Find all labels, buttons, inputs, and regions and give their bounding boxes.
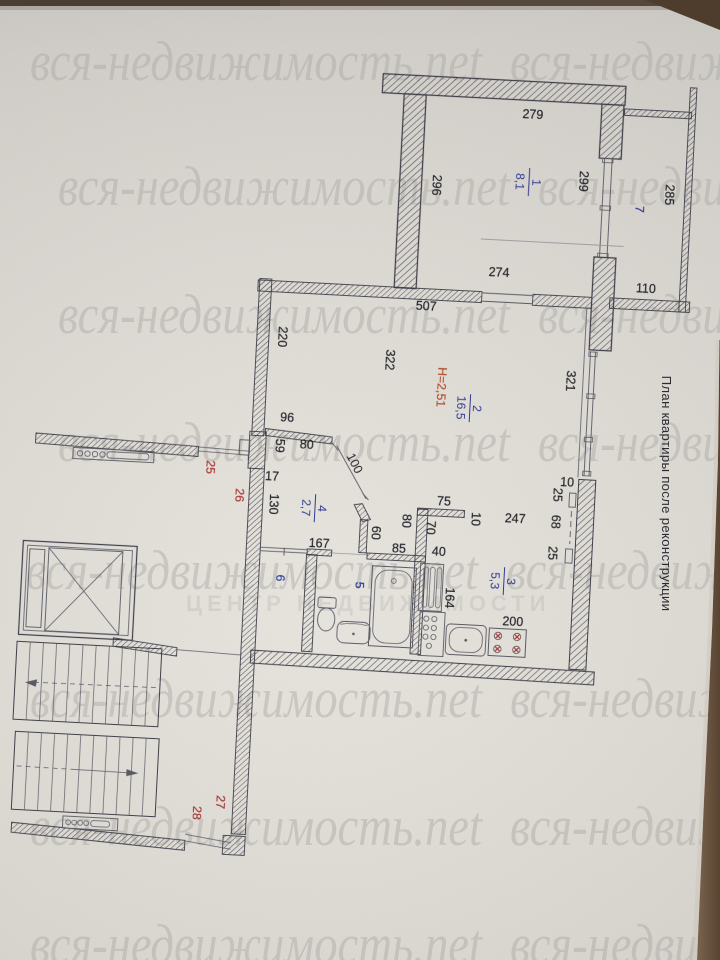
svg-text:Н=2,51: Н=2,51 — [434, 367, 450, 408]
svg-text:17: 17 — [265, 469, 280, 484]
svg-text:2,7: 2,7 — [298, 499, 313, 517]
svg-text:ЦЕНТР НЕДВИЖИМОСТИ: ЦЕНТР НЕДВИЖИМОСТИ — [186, 591, 551, 616]
svg-text:5: 5 — [353, 581, 367, 589]
svg-text:75: 75 — [437, 494, 452, 509]
svg-text:279: 279 — [522, 107, 544, 122]
svg-text:5,3: 5,3 — [487, 572, 502, 590]
svg-text:10: 10 — [560, 475, 575, 490]
svg-text:110: 110 — [636, 281, 657, 296]
svg-text:85: 85 — [392, 541, 407, 556]
svg-text:321: 321 — [563, 370, 578, 392]
svg-text:59: 59 — [273, 438, 288, 453]
svg-text:10: 10 — [468, 512, 483, 527]
svg-text:28: 28 — [190, 806, 205, 821]
svg-text:299: 299 — [576, 171, 591, 193]
svg-text:26: 26 — [232, 488, 247, 503]
svg-text:3: 3 — [504, 578, 518, 586]
svg-text:220: 220 — [275, 326, 290, 348]
svg-text:4: 4 — [315, 505, 329, 513]
svg-text:130: 130 — [266, 493, 281, 515]
svg-text:6: 6 — [273, 574, 287, 582]
svg-text:вся-недвижимость.net: вся-недвижимость.net — [30, 668, 483, 730]
svg-text:вся-недвижимость.net: вся-недвижимость.net — [30, 914, 483, 960]
svg-text:вся-недвижимость.net: вся-недвижимость.net — [510, 914, 720, 960]
svg-text:16,5: 16,5 — [453, 395, 468, 420]
svg-text:200: 200 — [502, 614, 524, 629]
svg-text:60: 60 — [369, 526, 384, 541]
svg-text:96: 96 — [280, 410, 295, 425]
svg-text:27: 27 — [213, 795, 228, 810]
svg-text:вся-недвижимость.net: вся-недвижимость.net — [538, 284, 720, 346]
svg-text:25: 25 — [203, 460, 218, 475]
svg-text:2: 2 — [470, 405, 484, 413]
svg-text:8,1: 8,1 — [512, 173, 527, 191]
svg-text:274: 274 — [488, 265, 510, 280]
svg-text:68: 68 — [548, 514, 563, 529]
svg-text:40: 40 — [432, 544, 447, 559]
svg-text:247: 247 — [504, 511, 526, 526]
svg-text:507: 507 — [415, 299, 437, 314]
svg-text:1: 1 — [529, 179, 543, 187]
svg-text:25: 25 — [550, 488, 565, 503]
svg-text:296: 296 — [429, 174, 444, 196]
svg-text:322: 322 — [382, 349, 397, 371]
svg-text:План квартиры после реконструк: План квартиры после реконструкции — [659, 376, 674, 612]
svg-text:167: 167 — [308, 536, 330, 551]
svg-text:вся-недвижимость.net: вся-недвижимость.net — [510, 796, 720, 858]
svg-text:70: 70 — [423, 520, 438, 535]
svg-text:25: 25 — [545, 546, 560, 561]
svg-text:80: 80 — [299, 437, 314, 452]
svg-text:7: 7 — [633, 206, 647, 214]
svg-text:80: 80 — [399, 514, 414, 529]
svg-text:285: 285 — [662, 184, 677, 206]
svg-text:вся-недвижимость.net: вся-недвижимость.net — [538, 412, 720, 474]
svg-text:164: 164 — [442, 587, 457, 609]
